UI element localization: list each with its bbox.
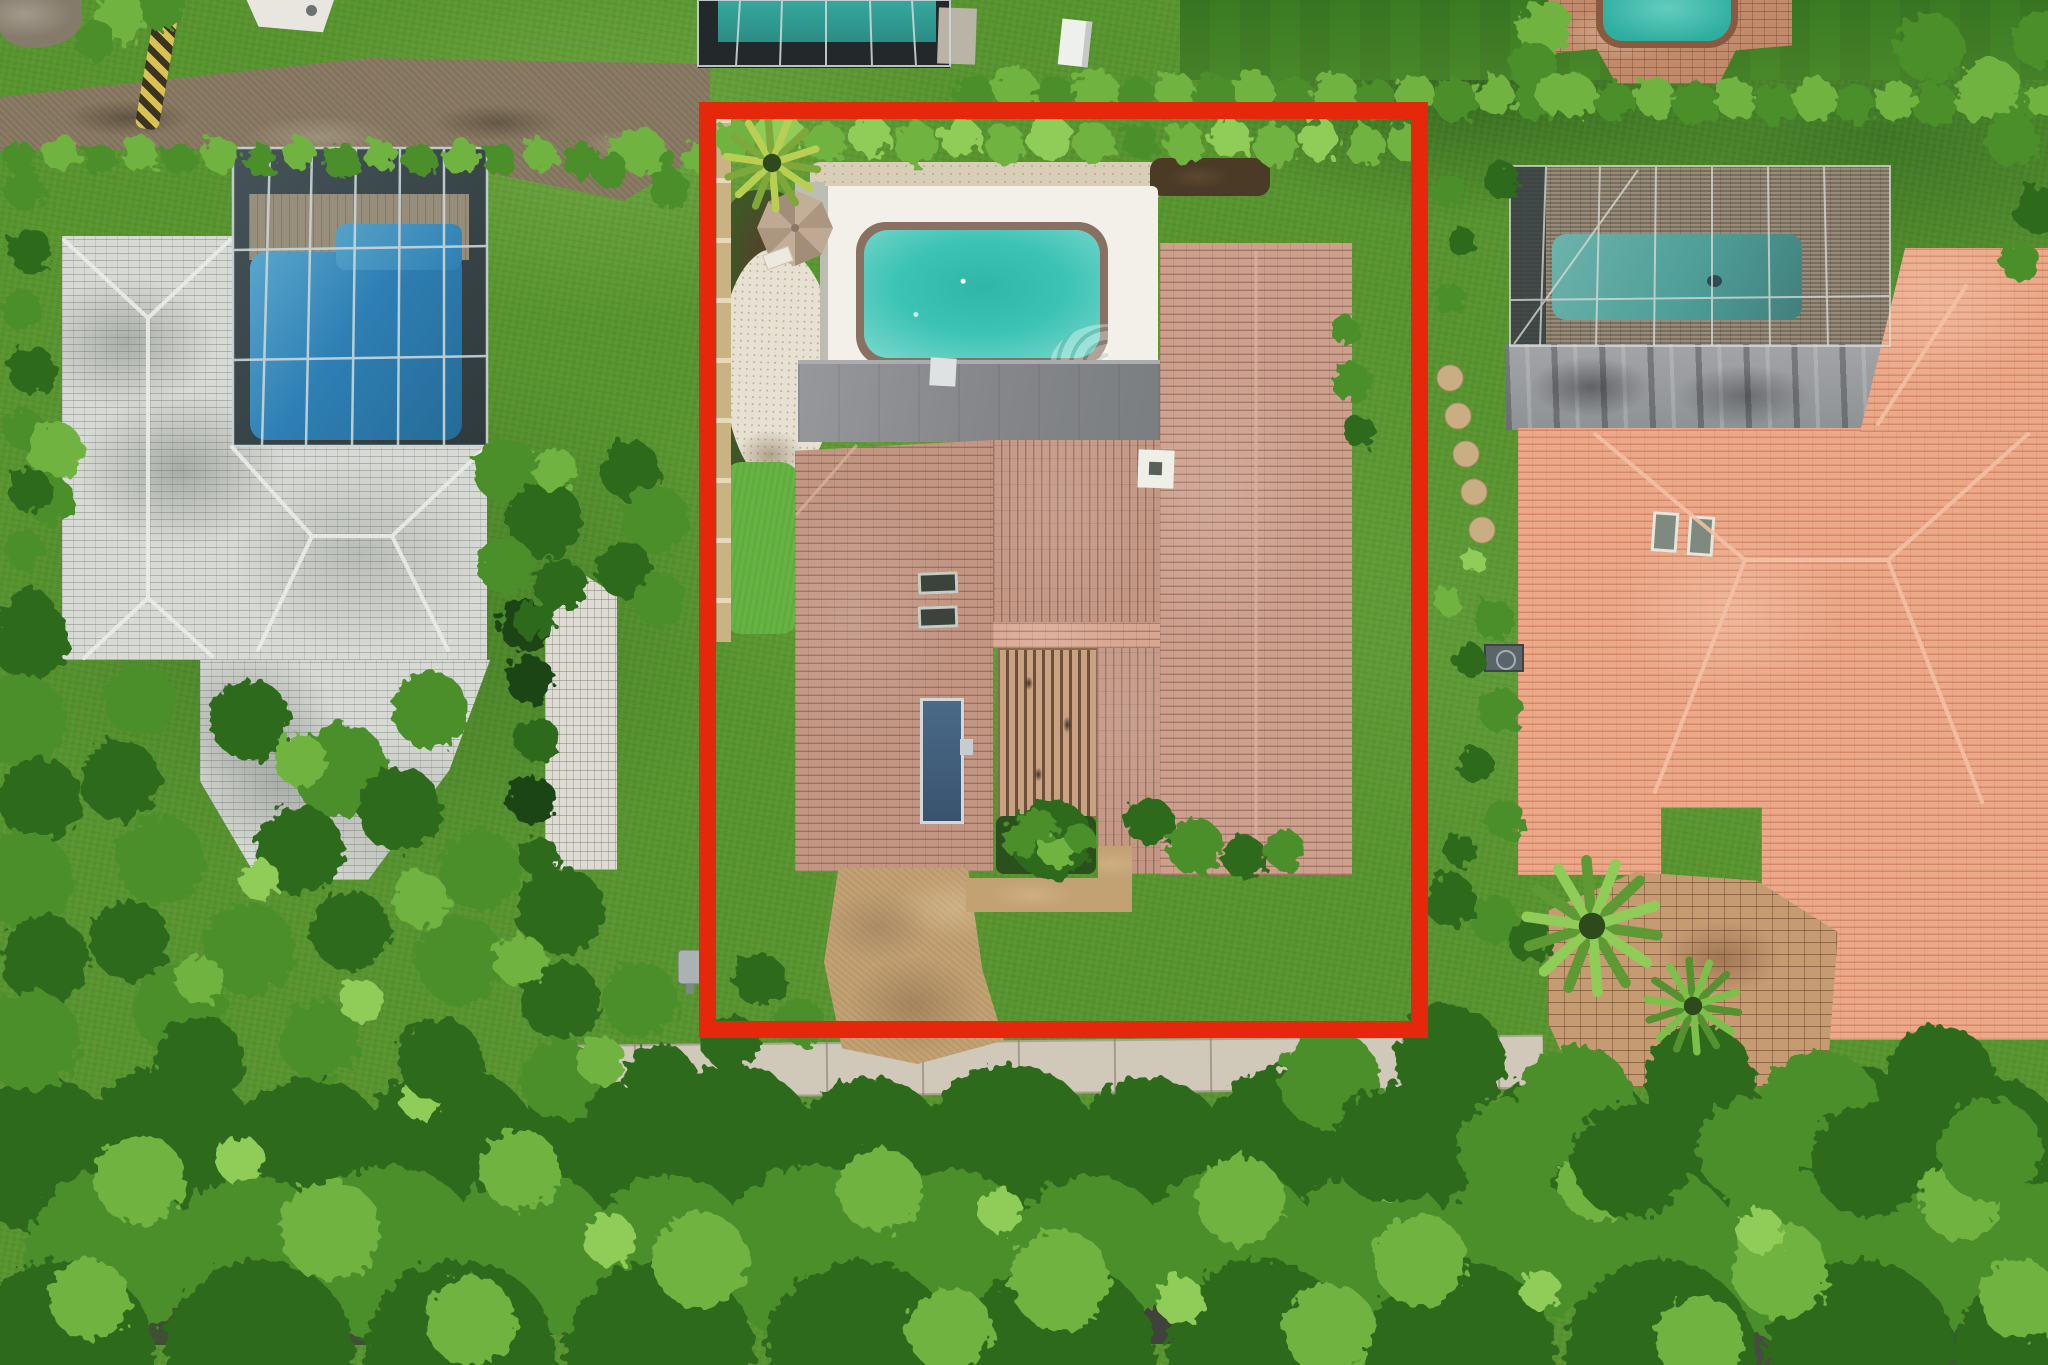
subject-property-outline: [699, 102, 1428, 1038]
stepping-stones: [1437, 365, 1495, 543]
aerial-photo: [0, 0, 2048, 1365]
